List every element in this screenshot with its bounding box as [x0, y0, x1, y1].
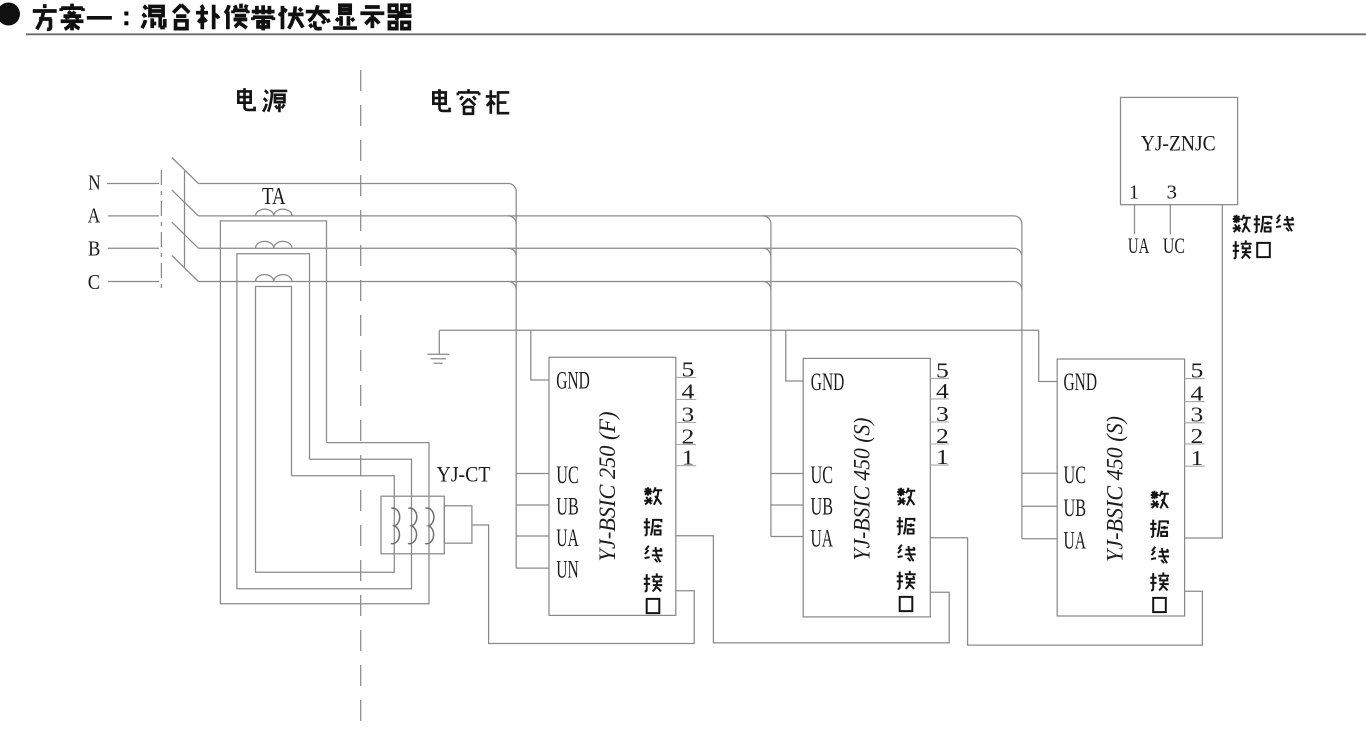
svg-text:YJ-CT: YJ-CT	[437, 462, 491, 487]
svg-text:C: C	[88, 270, 100, 294]
svg-text:YJ-BSIC 450 (S): YJ-BSIC 450 (S)	[1103, 416, 1129, 562]
svg-text:5: 5	[682, 357, 695, 381]
svg-text:YJ-BSIC 450 (S): YJ-BSIC 450 (S)	[850, 417, 876, 560]
svg-text:A: A	[88, 204, 101, 228]
svg-text:4: 4	[682, 379, 695, 403]
svg-text:GND: GND	[1064, 369, 1098, 396]
svg-text:YJ-BSIC 250 (F): YJ-BSIC 250 (F)	[595, 411, 621, 561]
svg-text:UB: UB	[1064, 493, 1087, 522]
svg-text:TA: TA	[262, 184, 286, 210]
svg-text:UN: UN	[556, 554, 579, 583]
svg-text:UC: UC	[811, 460, 834, 489]
svg-text:1: 1	[1191, 446, 1204, 470]
svg-text:UC: UC	[1064, 460, 1087, 489]
svg-text:UB: UB	[556, 492, 579, 521]
svg-text:B: B	[88, 237, 100, 261]
svg-text:UB: UB	[811, 492, 834, 521]
svg-text:2: 2	[1191, 424, 1204, 448]
svg-text:UA: UA	[1064, 525, 1087, 554]
svg-text:1: 1	[682, 446, 695, 470]
svg-text:4: 4	[936, 379, 949, 403]
svg-text:GND: GND	[811, 369, 845, 396]
svg-text:5: 5	[1191, 359, 1204, 383]
svg-text:1: 1	[1129, 182, 1139, 204]
svg-text:3: 3	[682, 402, 695, 426]
svg-text:UA: UA	[1128, 233, 1150, 258]
svg-text:N: N	[88, 170, 101, 194]
svg-text:1: 1	[936, 445, 949, 469]
svg-text:3: 3	[1167, 182, 1178, 204]
svg-text:UC: UC	[1163, 233, 1185, 258]
svg-text:3: 3	[936, 402, 949, 426]
svg-text:GND: GND	[556, 368, 590, 395]
svg-text:UC: UC	[556, 460, 579, 489]
svg-text:YJ-ZNJC: YJ-ZNJC	[1141, 130, 1216, 155]
svg-text:UA: UA	[811, 524, 834, 553]
svg-text:UA: UA	[556, 523, 579, 552]
